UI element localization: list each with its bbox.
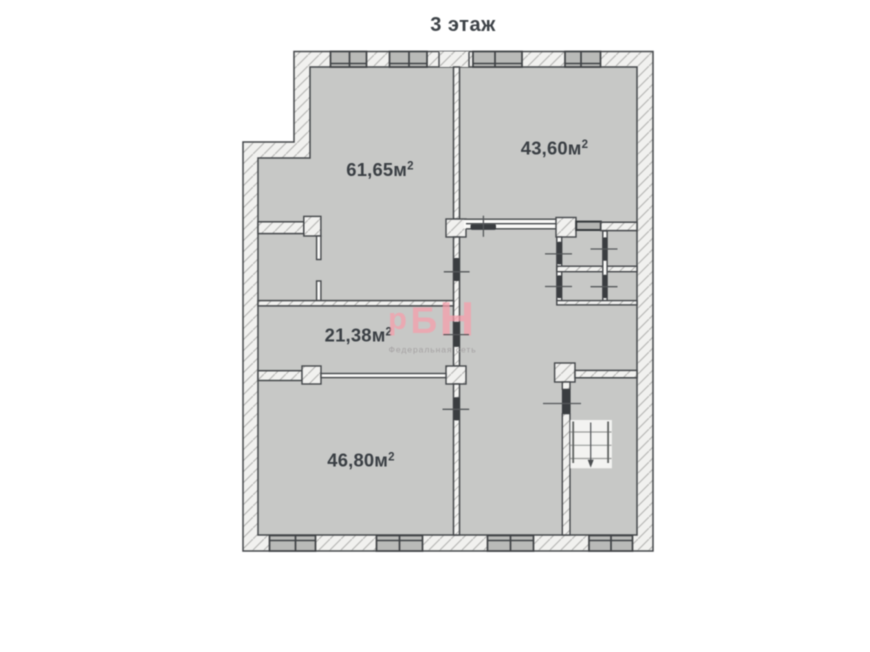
svg-text:3 этаж: 3 этаж [430, 14, 496, 36]
svg-text:46,80м2: 46,80м2 [327, 450, 394, 471]
svg-text:61,65м2: 61,65м2 [346, 159, 413, 180]
svg-text:21,38м2: 21,38м2 [325, 325, 392, 346]
svg-text:Б: Б [411, 300, 438, 341]
svg-text:43,60м2: 43,60м2 [521, 137, 588, 158]
svg-text:р: р [388, 301, 407, 336]
svg-text:Федеральная сеть: Федеральная сеть [389, 345, 477, 355]
